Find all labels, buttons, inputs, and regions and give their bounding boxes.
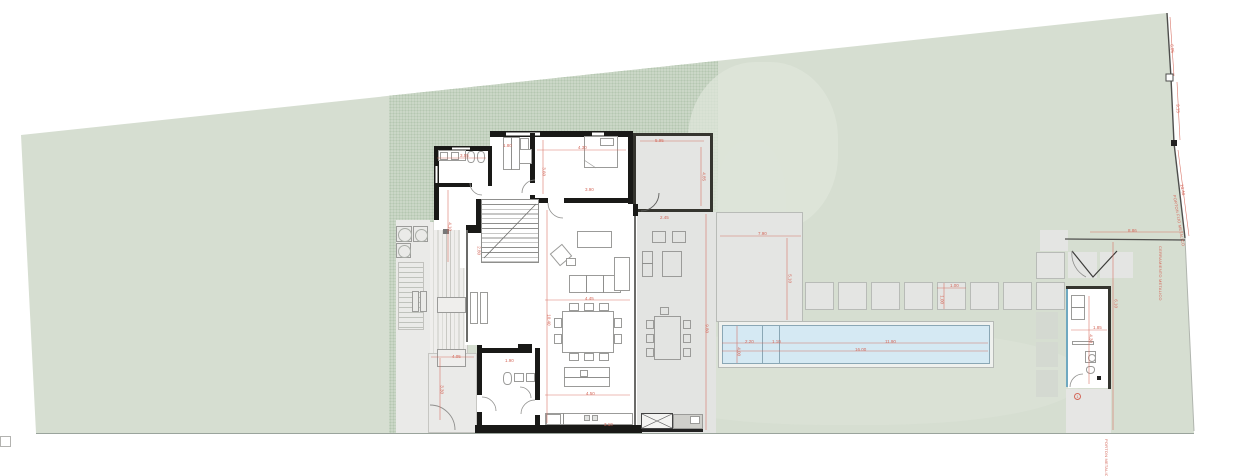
dimension-label: 9.80 [704, 324, 709, 333]
dimension-label: 1.85 [1093, 326, 1102, 331]
dimension-label: 2.80 [476, 246, 481, 255]
dimension-label: 1.00 [939, 295, 944, 304]
annotation-layer: 3.551.804.305.954.853.603.904.1010.404.4… [0, 0, 1245, 476]
dimension-label: 4.30 [578, 146, 587, 151]
note-label: CERRAMIENTO METALICO [1158, 246, 1162, 301]
dimension-label: 3.30 [439, 385, 444, 394]
dimension-label: 10.40 [1179, 184, 1185, 196]
dimension-label: 4.30 [1088, 334, 1093, 343]
site-plan-canvas: 3.551.804.305.954.853.603.904.1010.404.4… [0, 0, 1245, 476]
dimension-label: 4.50 [586, 392, 595, 397]
dimension-label: 4.10 [447, 222, 452, 231]
dimension-label: 1.80 [503, 144, 512, 149]
dimension-label: 5.95 [655, 139, 664, 144]
dimension-label: 1.10 [772, 340, 781, 345]
dimension-label: 11.90 [885, 340, 896, 345]
dimension-label: 4.45 [585, 297, 594, 302]
dimension-label: 5.10 [787, 274, 792, 283]
dimension-label: 2.20 [745, 340, 754, 345]
dimension-label: 3.90 [585, 188, 594, 193]
dimension-label: 2.45 [660, 216, 669, 221]
dimension-label: 10.40 [546, 314, 551, 325]
dimension-label: 8.86 [1128, 229, 1137, 234]
dimension-label: 6.10 [1113, 299, 1118, 308]
note-label: PORTON METALICO [1104, 439, 1108, 476]
dimension-label: 16.00 [855, 348, 866, 353]
dimension-label: 3.55 [460, 154, 469, 159]
note-label: PORTON FIJO METALICO [1172, 195, 1185, 247]
dimension-label: 6.05 [1169, 44, 1174, 53]
dimension-label: 4.05 [452, 355, 461, 360]
dimension-label: 4.00 [736, 347, 741, 356]
dimension-label: 1.00 [950, 284, 959, 289]
keyed-symbol: 1 [1074, 393, 1081, 400]
dimension-label: 1.90 [505, 359, 514, 364]
dimension-label: 3.60 [541, 167, 546, 176]
dimension-label: 4.85 [701, 172, 706, 181]
dimension-label: 3.10 [604, 423, 613, 428]
dimension-label: 7.90 [758, 232, 767, 237]
dimension-label: 9.15 [1175, 104, 1180, 113]
